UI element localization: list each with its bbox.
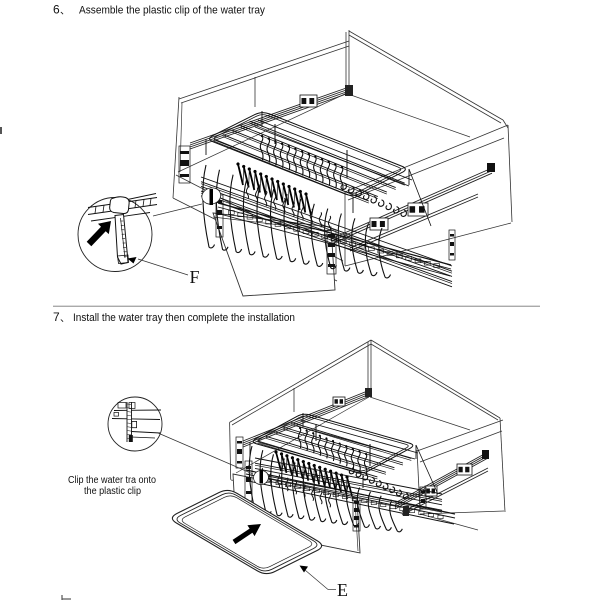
svg-text:F: F	[190, 267, 200, 287]
svg-text:Install the water tray then co: Install the water tray then complete the…	[73, 312, 295, 324]
svg-text:7: 7	[53, 310, 60, 324]
svg-text:、: 、	[60, 314, 70, 325]
svg-text:Clip the water tra onto: Clip the water tra onto	[68, 475, 156, 486]
svg-text:E: E	[337, 580, 348, 600]
svg-text:6: 6	[53, 3, 60, 17]
svg-text:Assemble the plastic clip of t: Assemble the plastic clip of the water t…	[79, 5, 265, 17]
svg-text:the plastic clip: the plastic clip	[84, 486, 141, 497]
svg-text:、: 、	[60, 6, 70, 17]
